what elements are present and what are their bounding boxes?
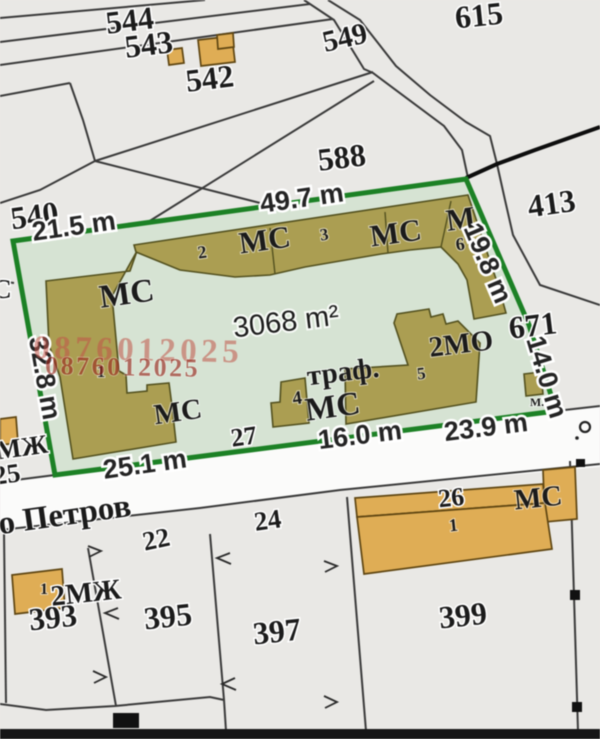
svg-text:0876012025: 0876012025	[45, 351, 200, 383]
svg-text:С: С	[0, 274, 12, 304]
svg-text:24: 24	[252, 503, 283, 536]
svg-text:399: 399	[437, 595, 489, 636]
svg-text:615: 615	[453, 0, 505, 35]
svg-text:588: 588	[316, 136, 368, 178]
svg-text:543: 543	[123, 23, 175, 65]
svg-text:МС: МС	[512, 480, 563, 517]
svg-text:МС: МС	[152, 393, 204, 431]
svg-text:26: 26	[437, 482, 466, 514]
svg-text:МС: МС	[97, 272, 156, 315]
svg-text:542: 542	[184, 57, 236, 99]
svg-text:395: 395	[142, 596, 194, 637]
svg-text:МС: МС	[368, 212, 424, 254]
svg-text:413: 413	[525, 182, 578, 224]
svg-text:МС: МС	[237, 219, 293, 261]
svg-text:1: 1	[40, 581, 48, 598]
svg-text:397: 397	[251, 611, 303, 652]
svg-text:27: 27	[229, 420, 259, 452]
